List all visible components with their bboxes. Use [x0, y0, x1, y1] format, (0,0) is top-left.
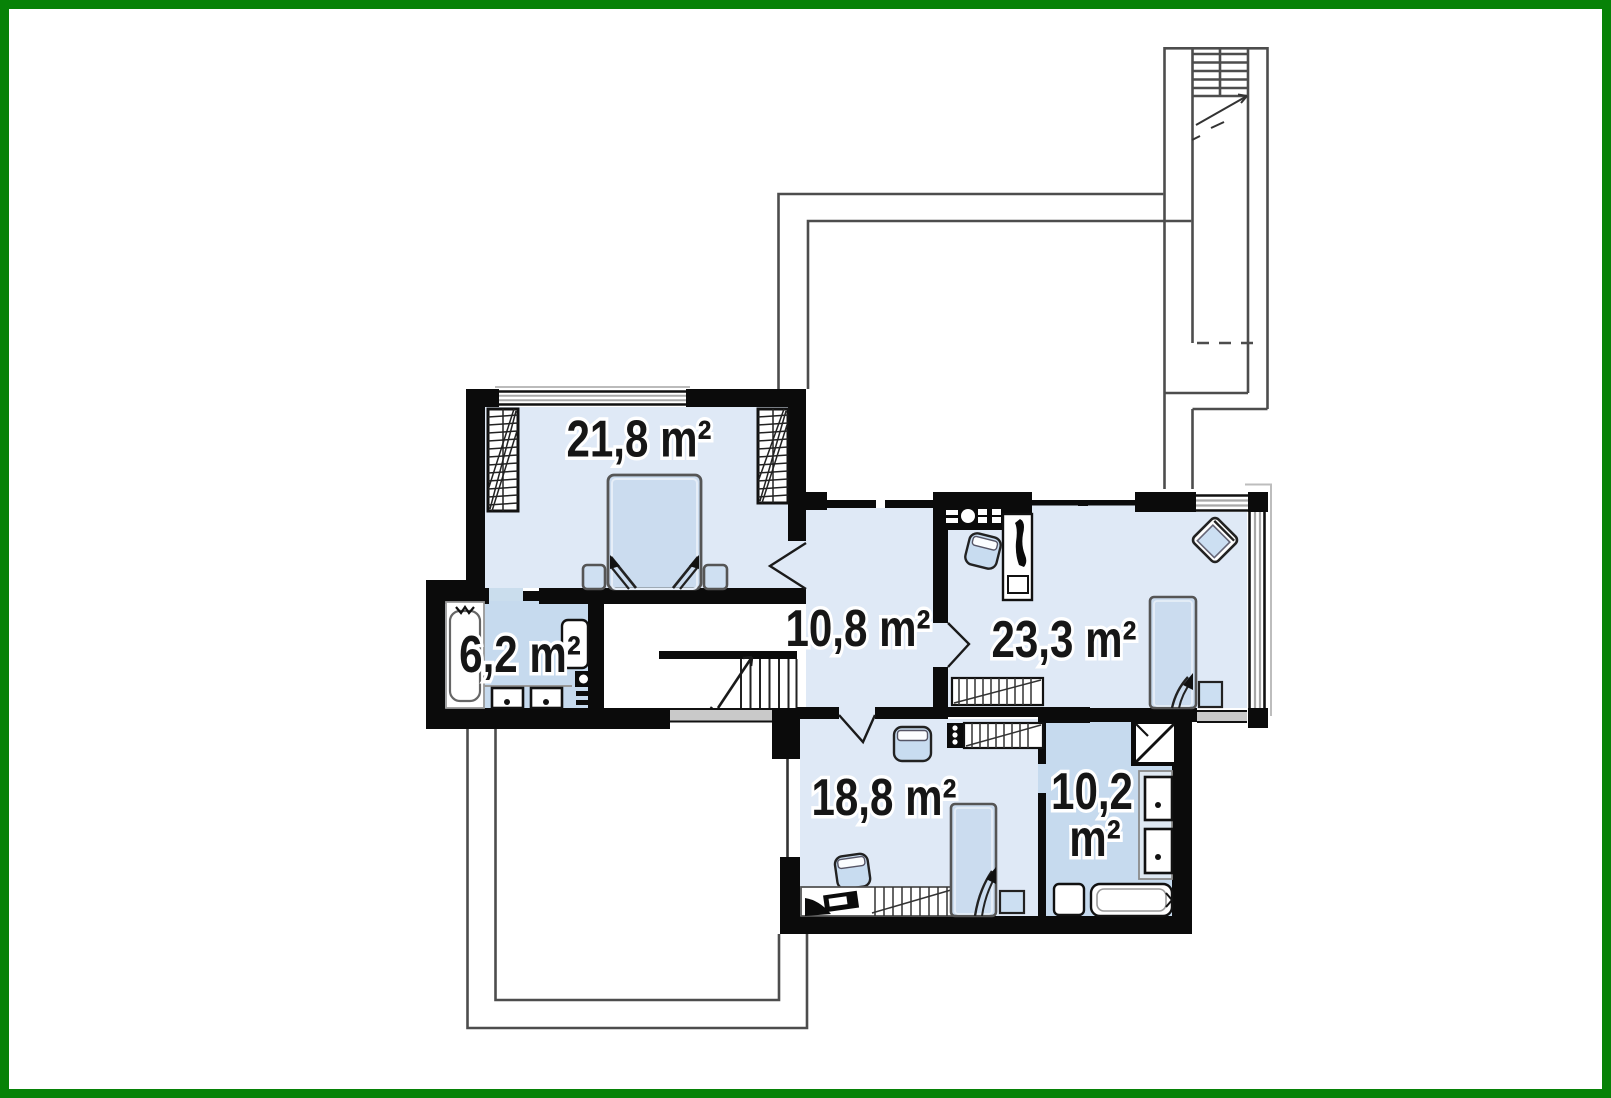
svg-text:m²: m²	[1069, 810, 1120, 868]
svg-text:21,8 m²: 21,8 m²	[566, 410, 711, 468]
svg-text:6,2 m²: 6,2 m²	[459, 626, 581, 684]
svg-text:10,8 m²: 10,8 m²	[785, 600, 930, 658]
svg-text:18,8 m²: 18,8 m²	[811, 769, 956, 827]
svg-text:23,3 m²: 23,3 m²	[991, 611, 1136, 669]
